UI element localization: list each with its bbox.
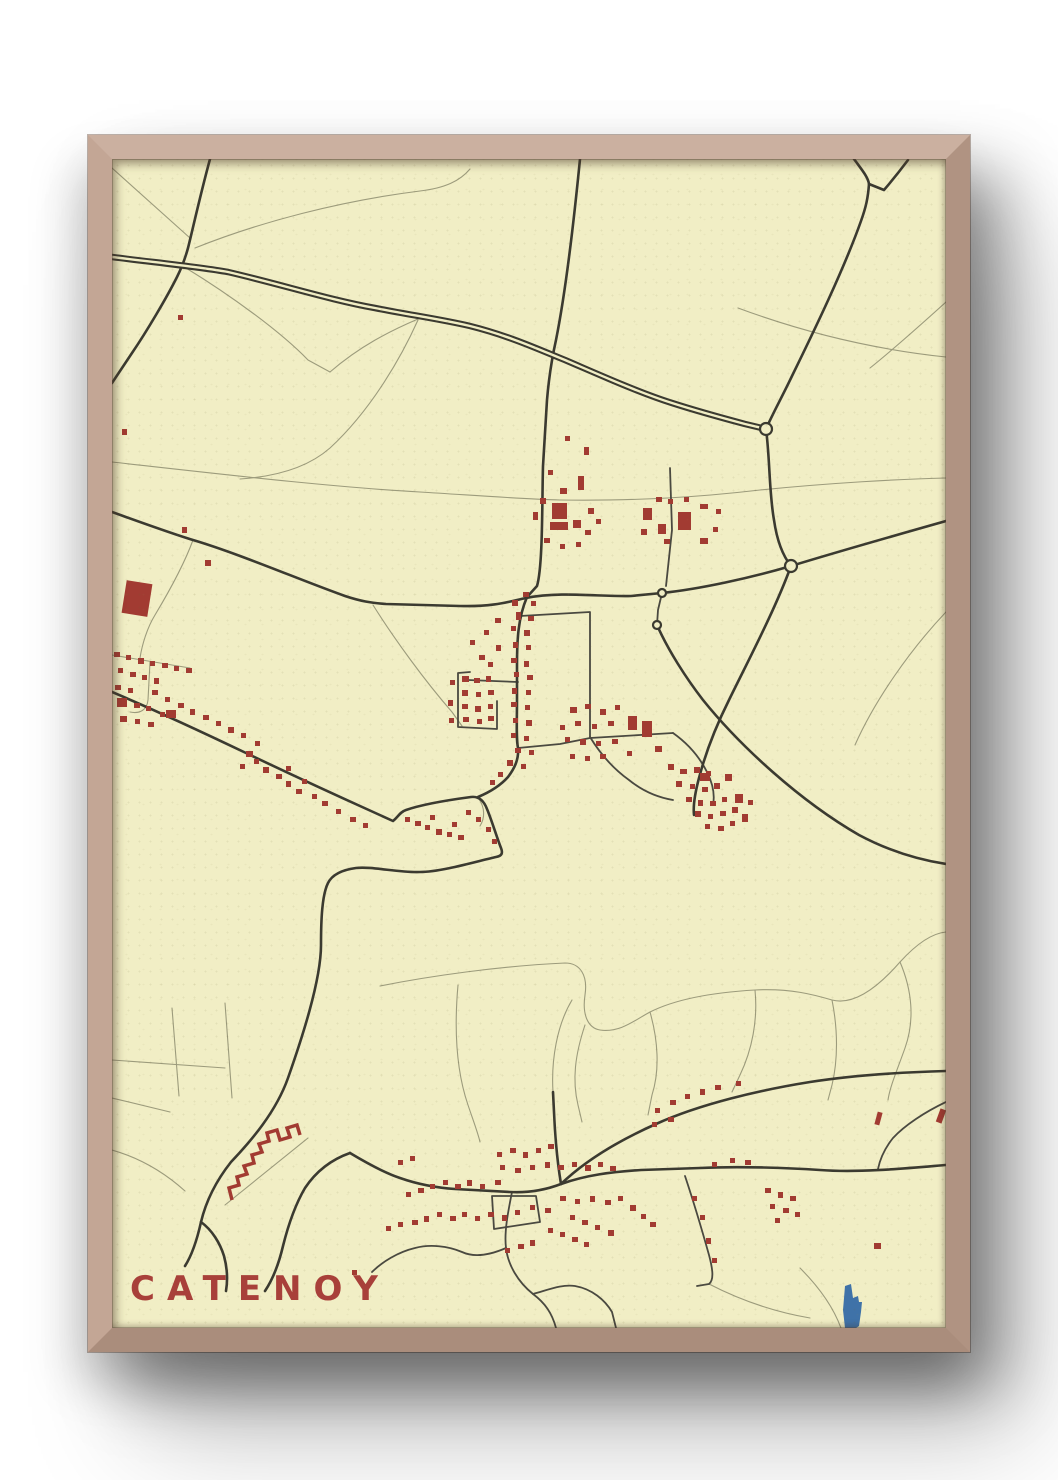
page-background: { "poster": { "title": "CATENOY" }, "col… bbox=[0, 0, 1058, 1480]
map-canvas bbox=[112, 159, 946, 1328]
poster-frame: CATENOY bbox=[88, 135, 970, 1352]
map-poster: CATENOY bbox=[112, 159, 946, 1328]
poster-title: CATENOY bbox=[130, 1272, 390, 1306]
